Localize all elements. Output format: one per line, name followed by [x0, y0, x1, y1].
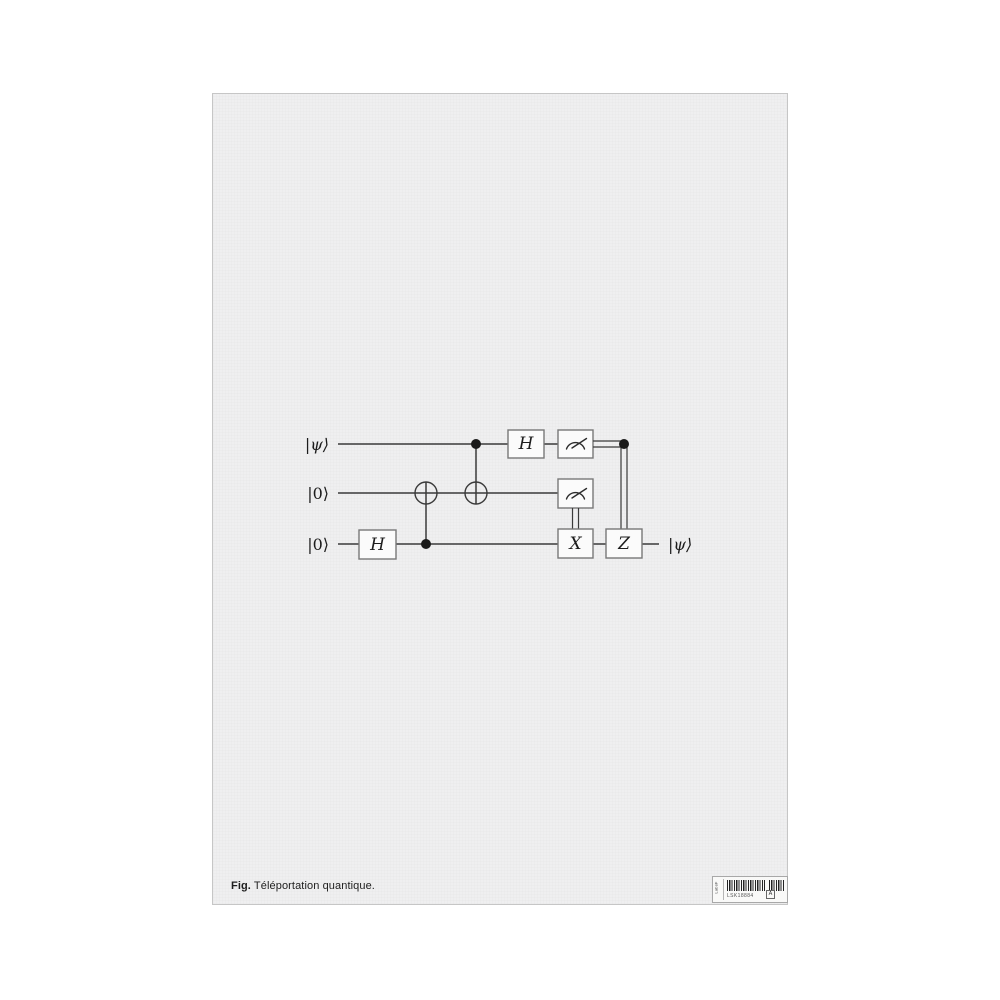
- classical-control-dot: [619, 439, 629, 449]
- figure-caption: Fig. Téléportation quantique.: [231, 880, 375, 892]
- quantum-circuit-diagram: H H X Z |ψ⟩ |0⟩ |0⟩: [293, 416, 703, 571]
- sticker-code-text: LSK18884: [727, 893, 754, 899]
- barcode-icon: [727, 880, 784, 891]
- poster-page: H H X Z |ψ⟩ |0⟩ |0⟩: [212, 93, 788, 905]
- measurement-gate-qubit1: [558, 430, 593, 458]
- stage: H H X Z |ψ⟩ |0⟩ |0⟩: [0, 0, 1000, 1000]
- classical-wire-to-x: [573, 508, 579, 529]
- qubit3-input-ket: |0⟩: [307, 535, 329, 554]
- figure-caption-prefix: Fig.: [231, 880, 251, 892]
- barcode-sticker: LabsF LSK18884 A: [712, 876, 788, 903]
- classical-wire-to-z: [621, 444, 627, 529]
- sticker-grade-badge: A: [766, 890, 775, 899]
- x-correction-gate-label: X: [567, 534, 582, 554]
- sticker-divider: [723, 879, 724, 900]
- output-ket: |ψ⟩: [668, 535, 692, 554]
- hadamard-gate-top-label: H: [518, 434, 535, 454]
- hadamard-gate-bottom-label: H: [369, 535, 386, 555]
- figure-caption-text: Téléportation quantique.: [254, 880, 375, 892]
- cnot1-control-dot: [421, 539, 431, 549]
- cnot2-control-dot: [471, 439, 481, 449]
- z-correction-gate-label: Z: [617, 534, 631, 554]
- sticker-side-text: LabsF: [714, 876, 719, 900]
- qubit1-input-ket: |ψ⟩: [305, 435, 329, 454]
- qubit2-input-ket: |0⟩: [307, 484, 329, 503]
- measurement-gate-qubit2: [558, 479, 593, 508]
